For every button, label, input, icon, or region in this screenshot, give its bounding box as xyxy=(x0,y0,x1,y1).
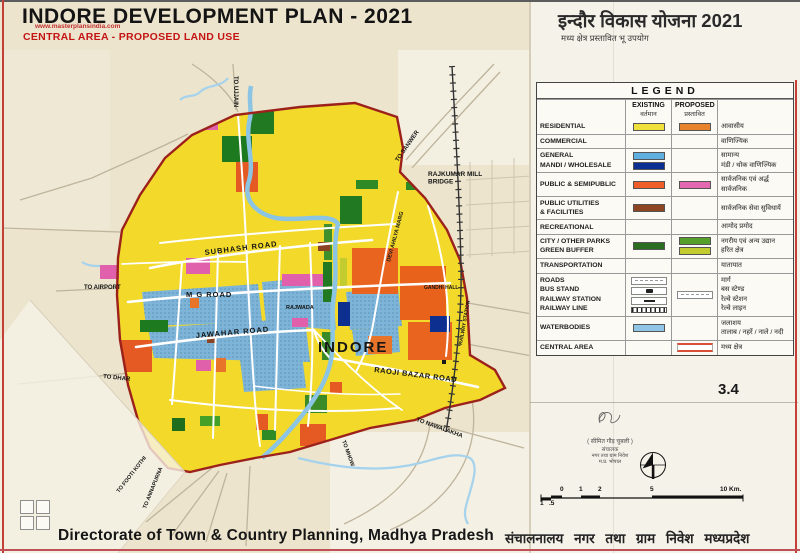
legend-label-hi: जलाशय तालाब / नहरें / नाले / नदी xyxy=(717,317,793,340)
legend-proposed-cell xyxy=(671,341,717,355)
patch-outside xyxy=(100,265,119,279)
city-map: TO UJJAINTO SANWERRAJKUMAR MILLBRIDGESUB… xyxy=(0,0,536,553)
legend-rows: RESIDENTIALआवासीयCOMMERCIALवाणिज्यिकGENE… xyxy=(537,120,793,355)
legend-existing-cell xyxy=(625,120,671,134)
legend-label-hi: यातायात xyxy=(717,259,793,273)
legend-label-hi: वाणिज्यिक xyxy=(717,135,793,149)
legend-label-en: COMMERCIAL xyxy=(537,135,625,149)
legend-swatch xyxy=(679,247,711,255)
legend-proposed-cell xyxy=(671,173,717,196)
grid-squares-icon xyxy=(20,500,50,530)
legend-existing-cell xyxy=(625,197,671,219)
sheet-edge-line xyxy=(529,0,531,553)
legend-row-4: PUBLIC UTILITIES & FACILITIESसार्वजनिक स… xyxy=(537,196,793,219)
legend-swatch xyxy=(633,242,665,250)
map-label-rajwada: RAJWADA xyxy=(286,305,314,311)
map-label-to-ujjain: TO UJJAIN xyxy=(232,76,238,107)
legend-label-en: RESIDENTIAL xyxy=(537,120,625,134)
legend-label-hi: सार्वजनिक सेवा सुविधायें xyxy=(717,197,793,219)
legend-proposed-cell xyxy=(671,317,717,340)
legend-label-en: GENERAL MANDI / WHOLESALE xyxy=(537,149,625,172)
stamp-name: ( सीमित गौड़ चुबली ) xyxy=(558,437,662,445)
legend-swatch xyxy=(633,324,665,332)
legend-proposed-cell xyxy=(671,220,717,234)
road-symbol xyxy=(677,291,713,299)
legend-proposed-cell xyxy=(671,235,717,258)
scale-label: .5 xyxy=(549,500,554,507)
scale-label: 0 xyxy=(560,486,564,493)
scan-edge-right xyxy=(795,80,797,553)
legend-existing-cell xyxy=(625,341,671,355)
legend-existing-cell xyxy=(625,135,671,149)
legend-title: LEGEND xyxy=(537,83,793,99)
legend-label-en: PUBLIC UTILITIES & FACILITIES xyxy=(537,197,625,219)
legend-label-hi: मार्ग बस स्टेण्ड रेल्वे स्टेशन रेल्वे ला… xyxy=(717,274,793,316)
legend-label-en: TRANSPORTATION xyxy=(537,259,625,273)
legend-label-hi: सामान्य मंडी / थोक वाणिज्यिक xyxy=(717,149,793,172)
legend-existing-cell xyxy=(625,149,671,172)
footer-directorate-hindi: संचालनालय नगर तथा ग्राम निवेश मध्यप्रदेश xyxy=(505,529,749,547)
scanned-map-sheet: TO UJJAINTO SANWERRAJKUMAR MILLBRIDGESUB… xyxy=(0,0,800,553)
horizontal-crease xyxy=(530,402,798,403)
bus-stand-symbol xyxy=(631,287,667,295)
legend-swatch xyxy=(633,162,665,170)
scan-edge-bottom xyxy=(0,549,800,551)
scan-edge-left xyxy=(2,0,4,553)
legend-label-en: WATERBODIES xyxy=(537,317,625,340)
legend-proposed-cell xyxy=(671,197,717,219)
legend-existing-cell xyxy=(625,317,671,340)
signature-scribble-icon xyxy=(592,407,628,431)
legend-label-en: CITY / OTHER PARKS GREEN BUFFER xyxy=(537,235,625,258)
scale-label: 1 xyxy=(579,486,583,493)
legend-label-en: PUBLIC & SEMIPUBLIC xyxy=(537,173,625,196)
map-subtitle-hindi: मध्य क्षेत्र प्रस्तावित भू उपयोग xyxy=(561,33,649,44)
sheet-number: 3.4 xyxy=(718,381,739,398)
legend-label-hi: आमोद प्रमोद xyxy=(717,220,793,234)
legend-box: LEGEND EXISTING वर्तमान PROPOSED प्रस्ता… xyxy=(536,82,794,356)
railway-station-symbol xyxy=(631,297,667,305)
legend-label-hi: नगरीय एवं अन्य उद्यान हरित क्षेत्र xyxy=(717,235,793,258)
legend-row-9: WATERBODIESजलाशय तालाब / नहरें / नाले / … xyxy=(537,316,793,340)
footer-directorate: Directorate of Town & Country Planning, … xyxy=(58,527,494,545)
scale-label: 10 Km. xyxy=(720,486,741,493)
legend-row-0: RESIDENTIALआवासीय xyxy=(537,120,793,134)
legend-column-header: EXISTING वर्तमान PROPOSED प्रस्तावित xyxy=(537,99,793,120)
legend-row-6: CITY / OTHER PARKS GREEN BUFFERनगरीय एवं… xyxy=(537,234,793,258)
legend-proposed-cell xyxy=(671,259,717,273)
legend-swatch xyxy=(633,123,665,131)
legend-existing-cell xyxy=(625,173,671,196)
legend-row-2: GENERAL MANDI / WHOLESALEसामान्य मंडी / … xyxy=(537,148,793,172)
legend-row-3: PUBLIC & SEMIPUBLICसार्वजनिक एवं अर्द्ध … xyxy=(537,172,793,196)
map-label-mg-road: M G ROAD xyxy=(186,290,232,299)
legend-proposed-cell xyxy=(671,135,717,149)
legend-existing-cell xyxy=(625,259,671,273)
legend-row-1: COMMERCIALवाणिज्यिक xyxy=(537,134,793,149)
legend-swatch xyxy=(679,237,711,245)
railway-line-symbol xyxy=(631,307,667,313)
legend-proposed-cell xyxy=(671,120,717,134)
map-label-indore: INDORE xyxy=(318,339,388,356)
legend-existing-cell xyxy=(625,274,671,316)
legend-swatch xyxy=(679,123,711,131)
legend-label-en: RECREATIONAL xyxy=(537,220,625,234)
legend-row-10: CENTRAL AREAमध्य क्षेत्र xyxy=(537,340,793,355)
map-label-gandhi-hall: GANDHI HALL xyxy=(424,285,458,291)
legend-proposed-cell xyxy=(671,149,717,172)
legend-label-hi: आवासीय xyxy=(717,120,793,134)
column-proposed: PROPOSED प्रस्तावित xyxy=(671,100,717,120)
scale-label: 5 xyxy=(650,486,654,493)
central-area-symbol xyxy=(677,343,713,352)
legend-label-en: ROADS BUS STAND RAILWAY STATION RAILWAY … xyxy=(537,274,625,316)
road-symbol xyxy=(631,277,667,285)
column-existing: EXISTING वर्तमान xyxy=(625,100,671,120)
scale-label: 1 xyxy=(540,500,544,507)
legend-row-5: RECREATIONALआमोद प्रमोद xyxy=(537,219,793,234)
scan-edge-top xyxy=(0,0,800,2)
legend-label-hi: सार्वजनिक एवं अर्द्ध सार्वजनिक xyxy=(717,173,793,196)
legend-swatch xyxy=(679,181,711,189)
legend-row-7: TRANSPORTATIONयातायात xyxy=(537,258,793,273)
legend-row-8: ROADS BUS STAND RAILWAY STATION RAILWAY … xyxy=(537,273,793,316)
bus-stand-marker xyxy=(442,360,446,364)
legend-existing-cell xyxy=(625,235,671,258)
watermark-text: www.masterplansindia.com xyxy=(35,23,120,30)
legend-label-en: CENTRAL AREA xyxy=(537,341,625,355)
legend-existing-cell xyxy=(625,220,671,234)
map-subtitle: CENTRAL AREA - PROPOSED LAND USE xyxy=(23,31,240,43)
legend-proposed-cell xyxy=(671,274,717,316)
legend-swatch xyxy=(633,204,665,212)
map-title-hindi: इन्दौर विकास योजना 2021 xyxy=(558,8,742,33)
scale-label: 2 xyxy=(598,486,602,493)
map-label-to-airport: TO AIRPORT xyxy=(84,285,121,291)
north-arrow-icon xyxy=(637,450,669,482)
legend-swatch xyxy=(633,152,665,160)
legend-swatch xyxy=(633,181,665,189)
legend-label-hi: मध्य क्षेत्र xyxy=(717,341,793,355)
